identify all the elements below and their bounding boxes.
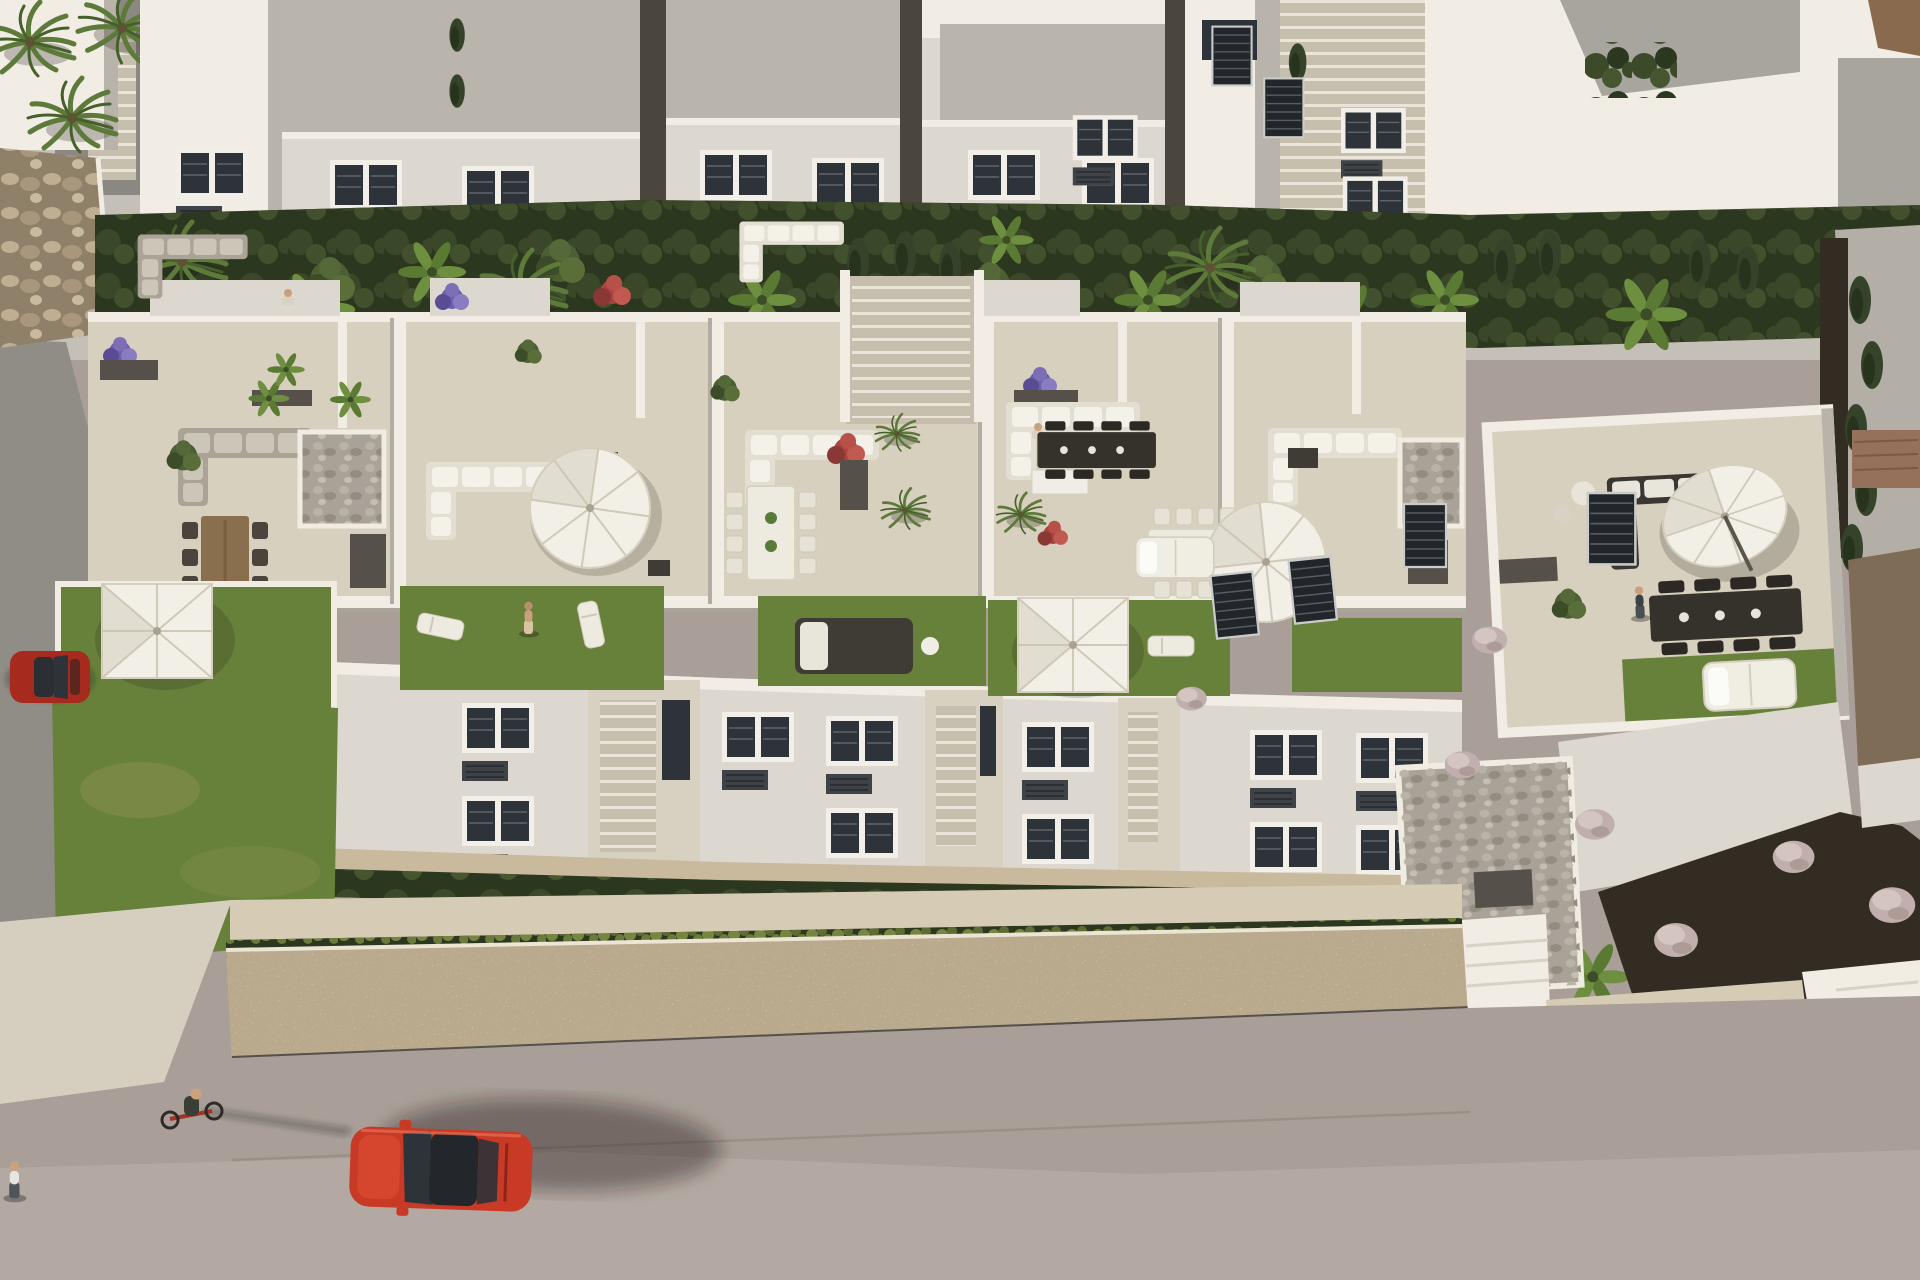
stairwell <box>588 680 700 880</box>
alley-2 <box>900 0 922 232</box>
cypress <box>1289 43 1307 81</box>
parked-hatchback <box>6 651 94 703</box>
double-lounger <box>1136 537 1214 578</box>
planter-box <box>1499 557 1558 584</box>
side-mirror <box>399 1120 411 1129</box>
aerial-render: Aerial 3D architectural rendering of a w… <box>0 0 1920 1280</box>
car-roof <box>429 1133 479 1207</box>
planter-box <box>350 534 386 588</box>
alley-3 <box>1165 0 1185 232</box>
double-lounger <box>1702 658 1796 711</box>
dark-window <box>1212 27 1251 86</box>
cypress <box>449 18 464 52</box>
planter-box <box>840 460 868 510</box>
stairwell <box>1118 698 1180 878</box>
dark-window <box>1289 557 1337 624</box>
stairwell <box>925 690 1003 878</box>
side-mirror <box>396 1207 408 1216</box>
dark-window <box>1264 78 1303 137</box>
car-hood <box>357 1134 401 1199</box>
courtyard-hedge <box>1585 42 1677 98</box>
dark-window <box>1588 493 1636 564</box>
dark-window <box>1404 504 1446 567</box>
cypress <box>449 74 464 108</box>
terrace-stairs <box>852 282 970 418</box>
scene-canvas: Aerial 3D architectural rendering of a w… <box>0 0 1920 1280</box>
rider-head <box>191 1089 202 1100</box>
side-table <box>921 637 939 655</box>
dark-window <box>1211 572 1259 639</box>
parasol-square <box>1012 598 1144 698</box>
sun-lounger <box>1148 636 1194 656</box>
right-entrance-steps <box>1462 914 1550 1014</box>
